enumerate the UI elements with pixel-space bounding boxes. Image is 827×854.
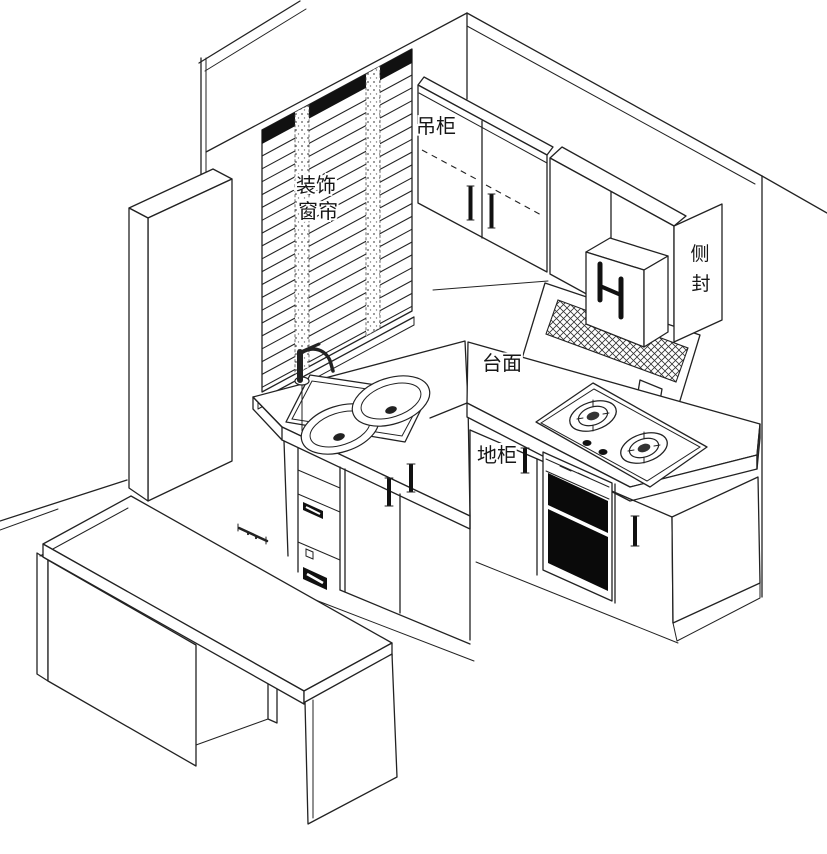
cabinet-end-panel bbox=[672, 477, 760, 623]
label-countertop: 台面 bbox=[482, 351, 522, 375]
kitchen-drawing-canvas: 装饰 窗帘 吊柜 侧 封 台面 地柜 bbox=[0, 0, 827, 854]
under-cabinet-line bbox=[433, 281, 548, 290]
curtain-band-right bbox=[366, 66, 380, 336]
table-under-drawer bbox=[196, 683, 277, 745]
control-knob bbox=[599, 449, 608, 455]
curtain-band-left bbox=[295, 105, 309, 374]
door-handle bbox=[521, 448, 529, 473]
wall-cabinet-left-section bbox=[418, 77, 553, 272]
label-curtain-line2: 窗帘 bbox=[298, 199, 338, 223]
drawer-stack bbox=[298, 448, 340, 590]
control-knob bbox=[583, 440, 592, 446]
label-curtain-line1: 装饰 bbox=[296, 173, 336, 197]
window-blinds bbox=[258, 49, 414, 409]
drawer-handle bbox=[303, 502, 323, 519]
handle-mark bbox=[238, 524, 267, 544]
label-side-seal-2: 封 bbox=[691, 273, 710, 295]
bar-table bbox=[37, 496, 397, 824]
label-wall-cabinet: 吊柜 bbox=[416, 114, 456, 138]
label-base-cabinet: 地柜 bbox=[477, 443, 517, 467]
drawer-lock bbox=[306, 549, 313, 559]
drawer-handle bbox=[303, 567, 327, 590]
door-handle bbox=[631, 516, 639, 546]
base-cabinets-right-run bbox=[467, 342, 760, 643]
kitchen-diagram: 装饰 窗帘 吊柜 侧 封 台面 地柜 bbox=[0, 0, 827, 854]
tall-side-panel bbox=[129, 169, 232, 501]
label-side-seal-1: 侧 bbox=[690, 243, 709, 265]
